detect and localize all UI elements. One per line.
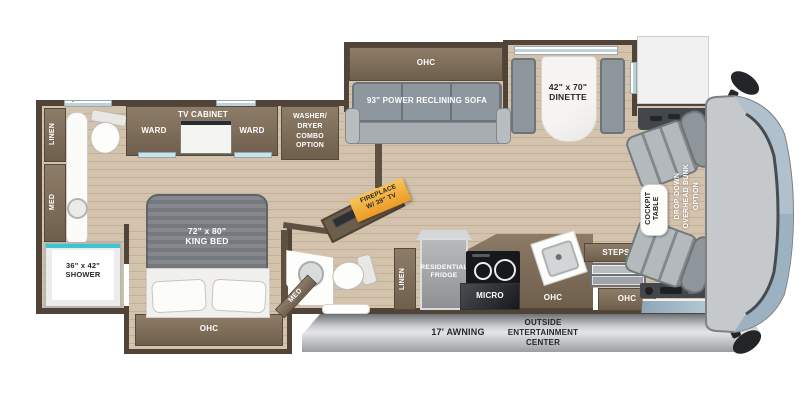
tv-icon — [180, 120, 232, 154]
ward-left-label: WARD — [128, 126, 180, 135]
dresser-mirror-right — [234, 152, 272, 158]
dinette-window — [514, 46, 618, 55]
cooktop-icon — [466, 251, 520, 284]
ward-right-label: WARD — [226, 126, 278, 135]
shower-label: 36" x 42" SHOWER — [46, 262, 120, 280]
bed-slide-window-left — [124, 264, 129, 306]
rear-med-label: MED — [49, 172, 61, 232]
dinette-bench-right — [600, 58, 625, 134]
dropdown-bunk-label: DROP-DOWN OVERHEAD BUNK OPTION — [673, 153, 701, 239]
king-bed-label: 72" x 80" KING BED — [146, 226, 268, 246]
micro-label: MICRO — [460, 291, 520, 300]
shower-teal-accent — [46, 244, 120, 248]
awning-label: 17' AWNING — [402, 327, 514, 338]
cockpit-table-label: COCKPIT TABLE — [645, 183, 662, 233]
rear-sink-icon — [67, 198, 88, 219]
hall-wall — [375, 138, 382, 188]
bedroom-window-left — [72, 100, 74, 102]
tv-cabinet-label: TV CABINET — [128, 110, 278, 119]
front-cap — [700, 70, 800, 358]
sofa-label: 93" POWER RECLINING SOFA — [349, 96, 505, 105]
kitchen-ohc-label: OHC — [522, 293, 584, 302]
pillow-left — [151, 279, 207, 314]
dinette-label: 42" x 70" DINETTE — [539, 82, 597, 102]
rear-toilet-icon — [84, 109, 129, 159]
sofa — [352, 82, 502, 142]
bed-ohc-label: OHC — [135, 324, 283, 333]
rv-floorplan: LINEN MED 36" x 42" SHOWER TV CABINET WA… — [0, 0, 800, 408]
sofa-ohc-label: OHC — [349, 58, 503, 67]
rear-linen-label: LINEN — [49, 104, 61, 164]
bath-mat — [322, 304, 370, 314]
dinette-bench-left — [511, 58, 536, 134]
dresser-mirror-left — [138, 152, 176, 158]
midbath-linen-label: LINEN — [399, 249, 411, 309]
outside-entertainment-label: OUTSIDE ENTERTAINMENT CENTER — [500, 318, 586, 348]
cab-roof-panel — [637, 36, 709, 104]
pillow-right — [211, 279, 267, 314]
washer-dryer-label: WASHER/ DRYER COMBO OPTION — [281, 112, 339, 151]
cockpit-side-window — [630, 62, 637, 94]
fridge-label: RESIDENTIAL FRIDGE — [420, 264, 468, 280]
rear-vanity — [66, 112, 88, 246]
